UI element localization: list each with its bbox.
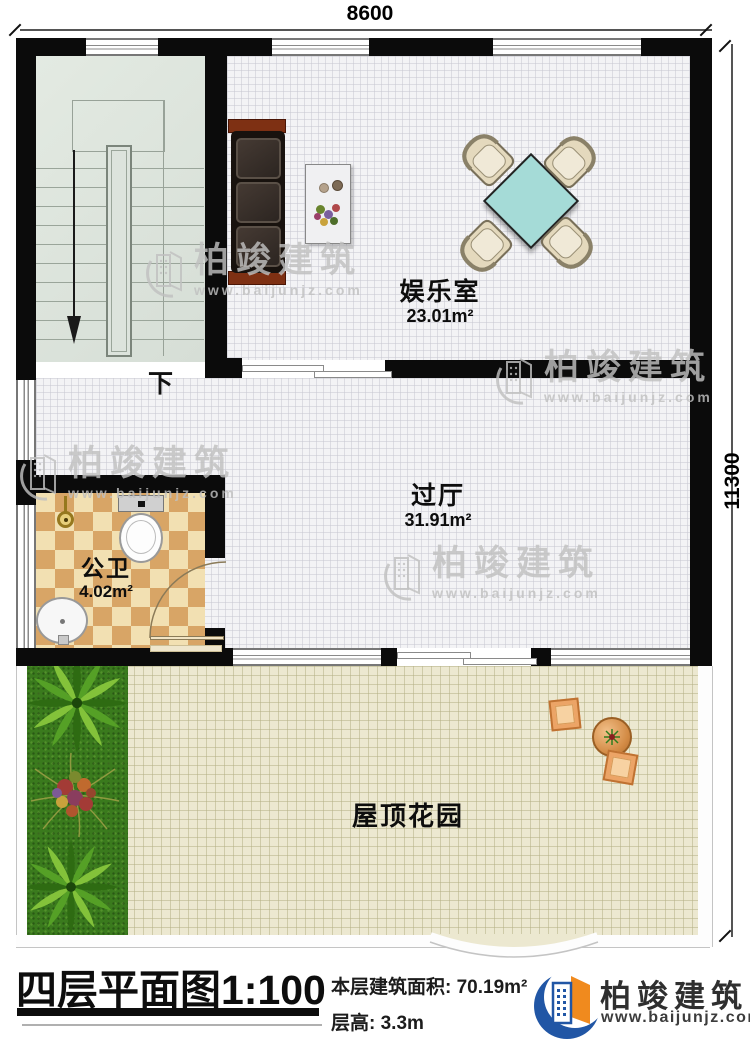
table-flowers [320, 218, 328, 226]
floor-height-value: 3.3m [381, 1013, 424, 1034]
table-flowers [330, 217, 338, 225]
stair-direction-arrowhead [67, 316, 81, 344]
table-bowl [332, 180, 343, 191]
stair-direction-line [73, 150, 75, 318]
sofa-cushion [236, 182, 281, 223]
plan-scale-text: 1:100 [221, 967, 326, 1013]
toilet-bowl-inner [126, 520, 156, 554]
stair-railing-inner [111, 150, 127, 352]
patio-table-plant [603, 728, 621, 746]
sliding-door-panel [314, 371, 392, 378]
room-name: 公卫 [46, 556, 166, 582]
window [233, 648, 381, 666]
sink [36, 597, 88, 644]
wall-segment [205, 493, 225, 558]
floorplan-canvas: 8600 11300 [0, 0, 750, 1046]
patio-chair-seat [555, 704, 575, 725]
console-table [305, 164, 351, 244]
table-flowers [314, 213, 321, 220]
room-name: 娱乐室 [370, 278, 510, 306]
sink-tap [58, 635, 69, 645]
dimension-width-label: 8600 [310, 2, 430, 26]
dimension-tick [719, 930, 732, 943]
room-area: 31.91m² [368, 510, 508, 530]
shower-head-pipe [64, 496, 67, 512]
sofa-cushion [236, 226, 281, 267]
floor-height-row: 层高: 3.3m [331, 1008, 424, 1035]
dimension-height-label: 11300 [721, 445, 745, 517]
wall-segment [158, 38, 272, 56]
window [493, 38, 641, 56]
stair-down-label: 下 [148, 364, 173, 400]
wall-segment [385, 360, 690, 378]
wall-segment [641, 38, 712, 56]
wall-segment [369, 38, 493, 56]
wall-segment [205, 56, 227, 360]
room-label-hallway: 过厅 31.91m² [368, 482, 508, 530]
room-name: 屋顶花园 [328, 802, 488, 831]
garden-parapet-left [16, 666, 27, 935]
window [272, 38, 369, 56]
title-underline-thick [17, 1008, 319, 1016]
plan-title-text: 四层平面图 [16, 967, 221, 1013]
company-website: www.baijunjz.com [601, 1009, 750, 1027]
garden-plants [26, 666, 128, 935]
wall-segment [205, 358, 242, 378]
room-area: 23.01m² [370, 306, 510, 326]
plan-title: 四层平面图1:100 [16, 956, 326, 1016]
wall-segment [16, 475, 225, 493]
shower-head-center [64, 518, 68, 522]
room-label-bathroom: 公卫 4.02m² [46, 556, 166, 601]
dimension-tick [719, 40, 732, 53]
patio-chair [603, 750, 639, 786]
stair-edge-line [163, 100, 164, 356]
stair-railing [106, 145, 132, 357]
floor-height-label: 层高: [331, 1013, 375, 1034]
toilet-tank [118, 495, 164, 512]
bathroom-threshold [150, 645, 222, 652]
floor-area-label: 本层建筑面积: [331, 977, 451, 998]
sliding-door-panel [242, 365, 324, 372]
wall-segment [381, 648, 397, 666]
shower-head [57, 511, 74, 528]
window [551, 648, 690, 666]
toilet-button [138, 501, 145, 507]
floor-area-row: 本层建筑面积: 70.19m² [331, 972, 527, 999]
wall-segment [16, 56, 36, 380]
sink-drain [60, 619, 65, 624]
room-name: 过厅 [368, 482, 508, 510]
wall-segment [690, 56, 712, 666]
patio-chair [548, 698, 581, 732]
wall-segment [16, 38, 86, 56]
garden-parapet-right [698, 666, 713, 947]
title-underline-thin [22, 1024, 322, 1026]
floor-area-value: 70.19m² [457, 977, 528, 998]
company-logo-icon [529, 964, 603, 1042]
window [16, 505, 36, 648]
dimension-line-top [20, 29, 712, 31]
sofa-cushion [236, 138, 281, 179]
table-flowers [332, 204, 340, 212]
room-area: 4.02m² [46, 582, 166, 601]
patio-chair-seat [609, 756, 631, 778]
room-label-garden: 屋顶花园 [328, 802, 488, 831]
sliding-door-panel [463, 658, 537, 665]
room-label-entertainment: 娱乐室 23.01m² [370, 278, 510, 326]
window [16, 380, 36, 460]
sofa-side-table-bottom [228, 271, 286, 285]
table-bowl [319, 183, 329, 193]
sliding-door-panel [397, 652, 471, 659]
window [86, 38, 158, 56]
